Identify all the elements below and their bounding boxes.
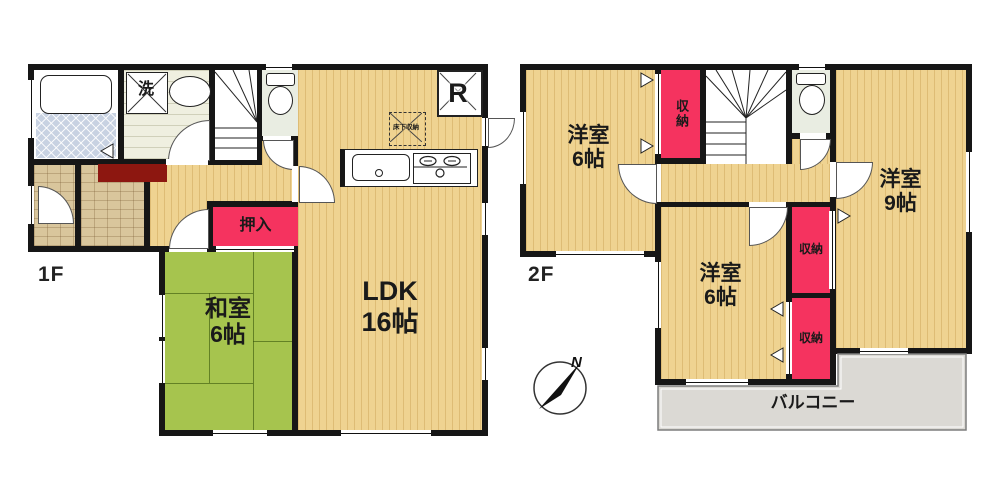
refrigerator-label: R: [439, 78, 477, 109]
stove-icon: [413, 153, 471, 184]
underfloor-storage-box: 床下収納: [389, 112, 426, 146]
closet-top: 収納: [661, 70, 700, 158]
compass-icon: N: [527, 352, 593, 418]
room-e-label: 洋室 9帖: [858, 168, 943, 216]
entrance-step-mat: [98, 164, 167, 182]
compass-north-label: N: [571, 354, 583, 371]
room-s-south-window: [686, 379, 748, 385]
ldk-east-window-1: [482, 203, 488, 235]
ldk-east-window-2: [482, 348, 488, 380]
washitsu-west-window-2: [159, 341, 165, 383]
kitchen-backdoor-arc: [488, 118, 515, 148]
room-nw-south-window: [556, 251, 644, 257]
ldk-label: LDK 16帖: [330, 276, 450, 338]
washitsu-south-window: [213, 430, 267, 436]
room-nw-name: 洋室: [546, 124, 631, 148]
floor1-label: 1F: [38, 263, 65, 287]
folding-door-marker: [837, 208, 851, 224]
closet-top-label: 収納: [673, 99, 688, 129]
closet-mid-label: 収納: [799, 243, 823, 257]
oshiire-sliding-door: [216, 246, 294, 252]
refrigerator-space: R: [437, 70, 483, 117]
toilet-tank-2f-icon: [796, 73, 826, 85]
floor-plan: 洗 押入 和室 6帖 LDK 1: [0, 0, 1000, 500]
closet-bottom-door: [786, 302, 792, 374]
closet-top-door: [655, 74, 661, 154]
room-s-west-window: [655, 262, 661, 328]
washitsu-label: 和室 6帖: [183, 295, 273, 348]
closet-bottom-label: 収納: [799, 332, 823, 346]
toilet-1f-window: [266, 64, 292, 70]
room-s-label: 洋室 6帖: [678, 262, 763, 310]
ldk-south-window: [341, 430, 431, 436]
washroom-doorway: [166, 159, 208, 165]
folding-door-marker: [770, 347, 784, 363]
underfloor-storage-label: 床下収納: [384, 124, 428, 131]
closet-bottom: 収納: [792, 298, 830, 379]
ldk-doorway: [292, 166, 298, 202]
closet-mid-door: [829, 211, 835, 289]
balcony-label: バルコニー: [748, 393, 878, 413]
toilet-bowl-2f-icon: [799, 85, 825, 115]
folding-door-marker: [640, 138, 654, 154]
bathroom-window: [28, 80, 34, 138]
room-s-name: 洋室: [678, 262, 763, 286]
stairs-1f: [215, 70, 257, 160]
toilet-2f-window: [799, 64, 825, 70]
laundry-label: 洗: [126, 81, 166, 99]
folding-door-marker: [770, 301, 784, 317]
tatami-line: [165, 383, 253, 384]
oshiire-closet: 押入: [213, 207, 298, 246]
stairs-2f: [706, 70, 786, 164]
room-e-east-window: [966, 152, 972, 232]
room-nw-west-window: [520, 112, 526, 184]
oshiire-label: 押入: [239, 217, 271, 235]
toilet-tank-1f-icon: [266, 73, 295, 86]
bathtub-icon: [40, 75, 112, 114]
room-e-size: 9帖: [858, 192, 943, 216]
washbasin-icon: [169, 76, 211, 107]
folding-door-marker: [100, 143, 114, 159]
sink-drain-icon: [375, 169, 383, 177]
floor2-label: 2F: [528, 263, 555, 287]
ldk-size: 16帖: [330, 307, 450, 338]
room-e-south-window: [860, 348, 908, 354]
washitsu-west-window-1: [159, 295, 165, 337]
closet-mid: 収納: [792, 207, 830, 293]
ldk-name: LDK: [330, 276, 450, 307]
folding-door-marker: [640, 72, 654, 88]
kitchen-sink-icon: [352, 154, 410, 181]
washitsu-size: 6帖: [183, 321, 273, 347]
room-s-size: 6帖: [678, 286, 763, 310]
toilet-bowl-1f-icon: [268, 86, 293, 115]
entry-door-gap: [28, 186, 34, 224]
hall-2f: [661, 164, 830, 202]
washitsu-name: 和室: [183, 295, 273, 321]
